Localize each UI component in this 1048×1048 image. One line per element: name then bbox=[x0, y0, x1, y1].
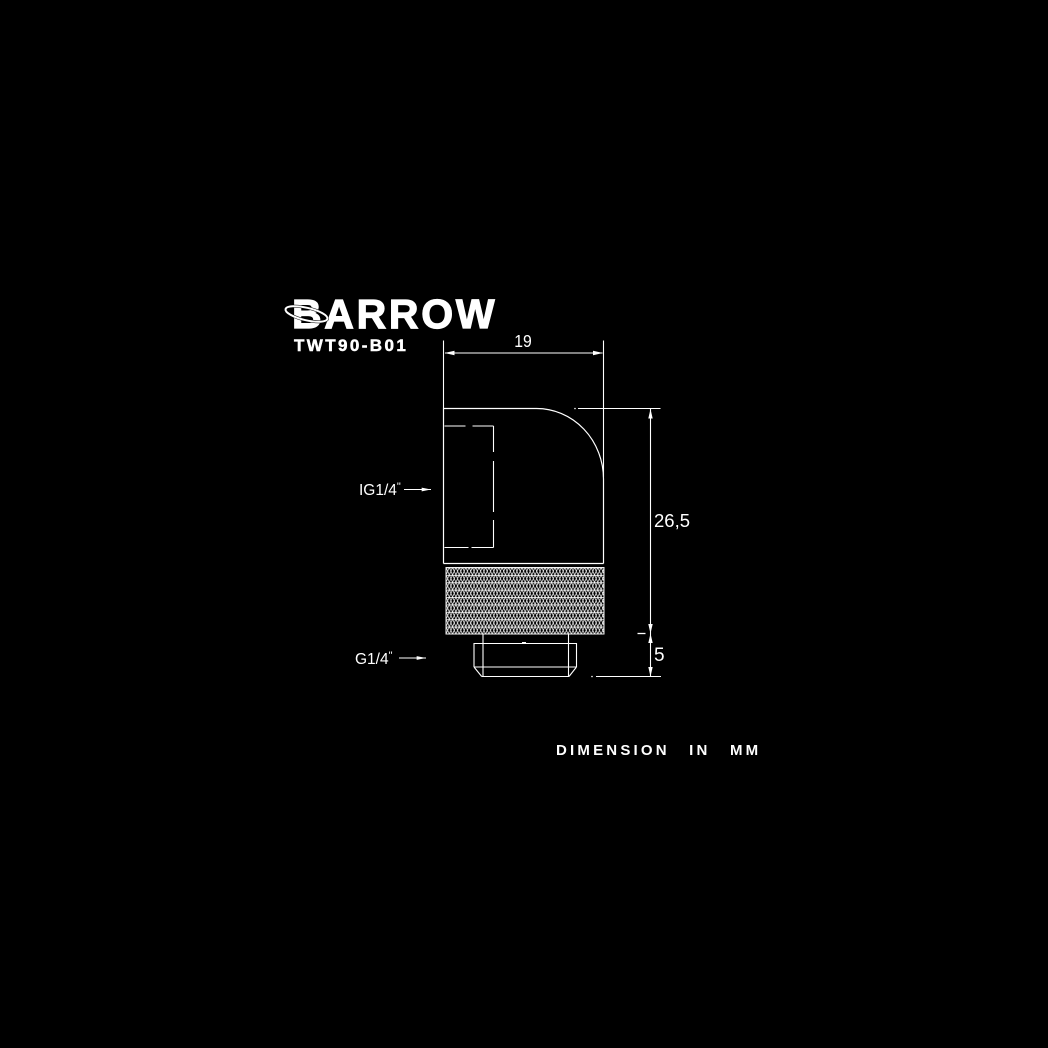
svg-text:26,5: 26,5 bbox=[654, 510, 690, 531]
svg-text:IG1/4": IG1/4" bbox=[359, 481, 401, 499]
svg-text:5: 5 bbox=[654, 645, 665, 666]
svg-text:G1/4": G1/4" bbox=[355, 650, 393, 668]
svg-text:19: 19 bbox=[514, 331, 532, 351]
svg-text:TWT90-B01: TWT90-B01 bbox=[294, 336, 408, 355]
svg-text:DIMENSION IN MM: DIMENSION IN MM bbox=[556, 742, 761, 759]
